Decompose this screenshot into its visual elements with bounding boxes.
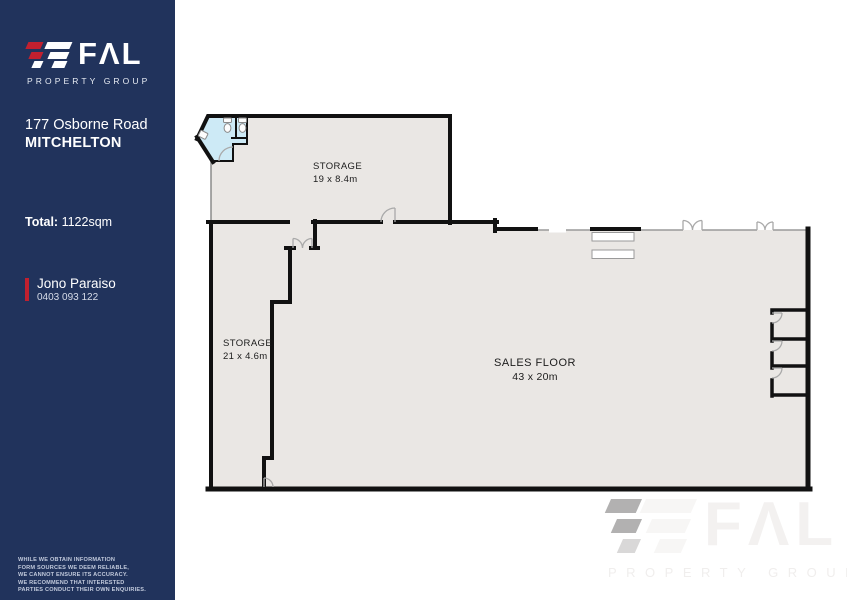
agent-card: Jono Paraiso 0403 093 122	[25, 276, 116, 304]
sidebar: FΛL PROPERTY GROUP 177 Osborne Road MITC…	[0, 0, 175, 600]
agent-name: Jono Paraiso	[37, 276, 116, 291]
total-area: Total: 1122sqm	[25, 215, 112, 229]
window-gap	[549, 228, 566, 233]
fal-stripes-icon	[27, 40, 71, 71]
address-street: 177 Osborne Road	[25, 116, 148, 134]
toilet-icon	[224, 118, 232, 132]
disclaimer-line: FORM SOURCES WE DEEM RELIABLE,	[18, 565, 168, 573]
room-dim-sales-floor: 43 x 20m	[512, 371, 558, 383]
fal-logo: FΛL PROPERTY GROUP	[27, 40, 150, 86]
property-address: 177 Osborne Road MITCHELTON	[25, 116, 148, 152]
disclaimer-line: WHILE WE OBTAIN INFORMATION	[18, 557, 168, 565]
watermark-stripes-icon	[608, 497, 694, 559]
total-value: 1122sqm	[62, 215, 113, 229]
brand-tagline: PROPERTY GROUP	[27, 76, 150, 86]
watermark-brand-text: FΛL	[704, 497, 839, 553]
disclaimer-line: PARTIES CONDUCT THEIR OWN ENQUIRIES.	[18, 587, 168, 595]
room-label-storage-top: STORAGE	[313, 161, 362, 172]
floorplan: STORAGE 19 x 8.4m STORAGE 21 x 4.6m SALE…	[185, 100, 830, 505]
agent-accent-bar	[25, 278, 29, 301]
brand-text: FΛL	[78, 40, 143, 68]
watermark-logo: FΛL PROPERTY GROUP	[608, 497, 847, 580]
address-suburb: MITCHELTON	[25, 134, 148, 152]
room-dim-storage-left: 21 x 4.6m	[223, 351, 267, 362]
room-dim-storage-top: 19 x 8.4m	[313, 174, 357, 185]
disclaimer-line: WE RECOMMEND THAT INTERESTED	[18, 580, 168, 588]
watermark-tagline: PROPERTY GROUP	[608, 565, 847, 580]
disclaimer: WHILE WE OBTAIN INFORMATION FORM SOURCES…	[18, 557, 168, 595]
room-label-sales-floor: SALES FLOOR	[494, 357, 576, 369]
toilet-icon	[239, 118, 247, 132]
counter-rect	[592, 233, 634, 242]
room-label-storage-left: STORAGE	[223, 338, 272, 349]
page-canvas: FΛL PROPERTY GROUP 177 Osborne Road MITC…	[0, 0, 847, 600]
disclaimer-line: WE CANNOT ENSURE ITS ACCURACY.	[18, 572, 168, 580]
total-label: Total:	[25, 215, 58, 229]
counter-rect	[592, 250, 634, 259]
agent-phone: 0403 093 122	[37, 292, 116, 304]
